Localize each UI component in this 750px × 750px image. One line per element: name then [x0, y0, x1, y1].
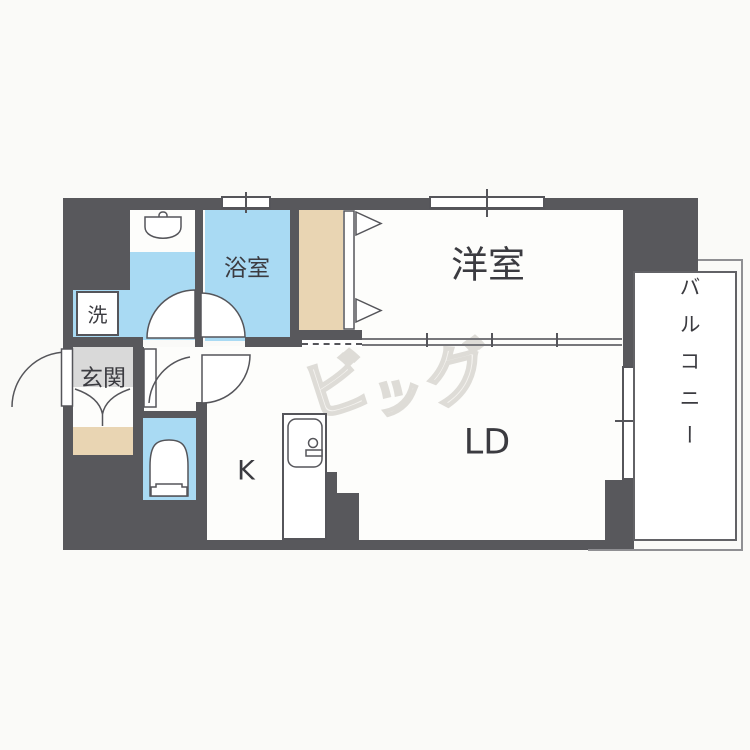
washroom-floor-upper	[130, 252, 195, 290]
front-door-arc	[12, 352, 67, 407]
wall-kitchen-left	[196, 402, 207, 550]
bathroom-window-tick	[245, 192, 247, 213]
kitchen-label: K	[237, 458, 255, 485]
wall-wash-bath-divider	[195, 206, 203, 338]
bathroom-label: 浴室	[224, 258, 270, 281]
sliding-door-tick-3	[556, 333, 558, 347]
wall-left	[63, 198, 73, 412]
entrance-step-area	[73, 387, 133, 418]
sliding-door-tick-2	[491, 333, 493, 347]
dashed-opening-line	[302, 343, 362, 345]
western-room-label: 洋室	[451, 247, 525, 284]
balcony-outer-line-bottom	[588, 549, 743, 551]
wall-above-toilet	[143, 411, 196, 418]
wall-topleft-block	[63, 198, 130, 290]
wall-hall-pier	[195, 337, 203, 347]
washbasin-nook-floor	[130, 208, 195, 252]
balcony-label: バルコニー	[674, 276, 704, 461]
entrance-label: 玄関	[80, 368, 126, 391]
living-dining-label: LD	[464, 426, 510, 461]
wall-bottomleft-block	[73, 455, 143, 550]
entrance-step	[73, 427, 133, 455]
wall-left-lower	[63, 412, 73, 550]
wall-kitchen-step-b	[337, 493, 359, 540]
sliding-door-tick-1	[426, 333, 428, 347]
wall-kitchen-step-a	[327, 472, 337, 540]
laundry-label: 洗	[88, 299, 108, 328]
laundry-pan: 洗	[76, 291, 119, 336]
entrance-threshold	[73, 418, 133, 427]
closet-floor	[298, 210, 343, 330]
floor-plan-page: { "watermark": "ビッグ", "rooms": { "bathro…	[0, 0, 750, 750]
western-room-window-tick	[486, 189, 488, 217]
wall-hall-a	[63, 337, 143, 347]
hallway-floor	[143, 347, 207, 410]
kitchen-counter	[282, 413, 327, 540]
toilet-floor	[143, 418, 196, 500]
wall-toilet-left	[133, 418, 143, 455]
wall-entrance-right	[133, 347, 144, 418]
wall-topright-block	[623, 200, 698, 272]
wall-bath-right	[290, 198, 299, 341]
wall-top	[63, 198, 698, 210]
living-kitchen-floor	[207, 346, 623, 540]
floor-plan-canvas: ビ ッ グ 洗	[0, 0, 750, 750]
balcony-outer-line-right	[741, 259, 743, 551]
wall-bottom	[63, 540, 633, 550]
balcony-outer-line-top	[698, 259, 743, 261]
